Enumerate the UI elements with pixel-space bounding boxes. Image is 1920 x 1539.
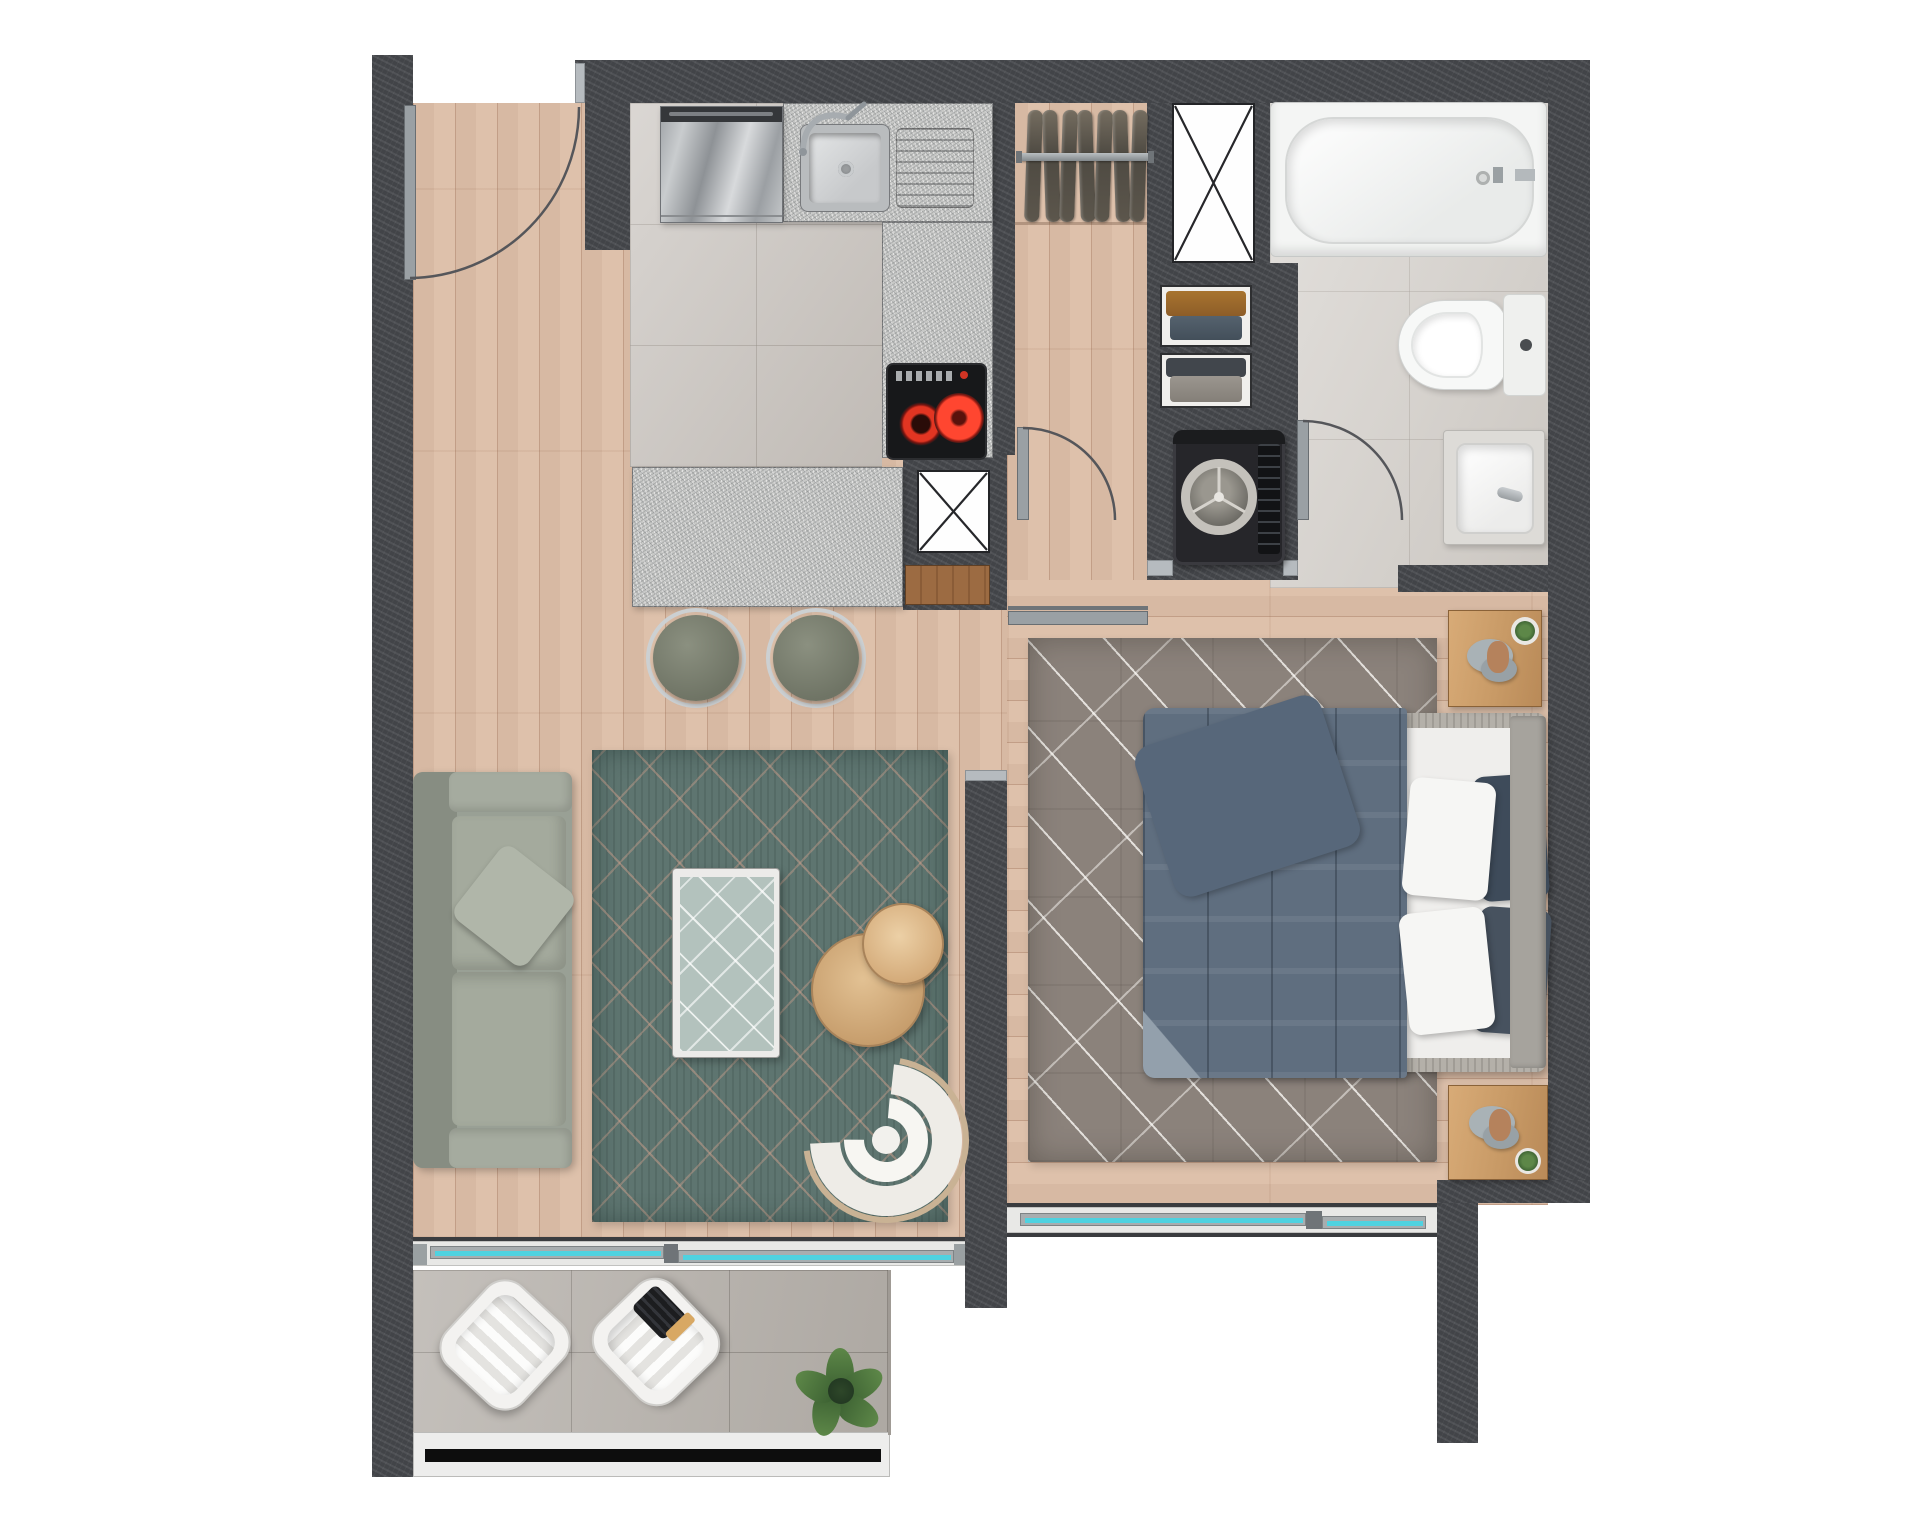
wall-closet-right xyxy=(1147,103,1172,263)
window-glass xyxy=(683,1255,951,1260)
nightstand-top xyxy=(1448,610,1542,707)
balcony-plant xyxy=(796,1348,886,1438)
washer-control-panel xyxy=(1258,444,1280,554)
washing-machine xyxy=(1173,430,1285,565)
toilet-seat xyxy=(1411,312,1483,378)
folded-clothes-blue xyxy=(1170,316,1242,340)
wall-partition-stub xyxy=(965,1240,1007,1308)
fridge-door-line xyxy=(661,215,782,217)
wall-closet-left xyxy=(990,103,1015,455)
wall-partition-living-bedroom xyxy=(965,780,1007,1240)
glazing-end-cap xyxy=(413,1244,427,1265)
balcony-edge-line xyxy=(888,1270,891,1435)
closet-rod-end xyxy=(1148,151,1154,163)
kitchen-island xyxy=(632,467,903,607)
service-shaft-kitchen xyxy=(917,470,990,553)
window-divider xyxy=(664,1244,678,1263)
sofa-backrest xyxy=(413,772,457,1168)
closet-edge-line xyxy=(1015,222,1147,225)
window-panel xyxy=(678,1250,954,1263)
sofa-armrest xyxy=(449,772,572,812)
fridge-handle xyxy=(669,112,773,116)
bathroom-door-leaf xyxy=(1297,420,1309,520)
window-glass xyxy=(1025,1218,1303,1223)
glazing-end-cap xyxy=(954,1244,965,1265)
cooktop-controls xyxy=(896,371,956,381)
shelf-compartment xyxy=(1160,285,1252,347)
plant-center xyxy=(828,1378,854,1404)
bar-stool xyxy=(773,615,859,701)
burner-large xyxy=(934,393,984,443)
window-glass xyxy=(1327,1221,1423,1226)
toilet xyxy=(1398,300,1510,390)
door-jamb-cap xyxy=(965,770,1007,781)
window-panel xyxy=(1322,1216,1426,1229)
balcony-railing xyxy=(413,1432,890,1477)
wall-right xyxy=(1548,60,1590,1203)
cooktop-indicator xyxy=(960,371,968,379)
folded-clothes-dark xyxy=(1166,358,1246,377)
door-jamb-cap xyxy=(575,63,585,103)
plant-pot xyxy=(1511,617,1539,645)
bar-stool xyxy=(653,615,739,701)
floor-plan-canvas xyxy=(0,0,1920,1539)
plant-pot xyxy=(1515,1148,1541,1174)
window-panel xyxy=(430,1246,664,1259)
wall-bathroom-bottom xyxy=(1398,565,1548,592)
service-shaft-top xyxy=(1172,103,1255,263)
sink-drain xyxy=(838,161,854,177)
washbasin xyxy=(1456,443,1534,534)
sliding-door-panel xyxy=(1008,611,1148,625)
flush-button xyxy=(1520,339,1532,351)
folded-clothes-brown xyxy=(1166,291,1246,316)
bed-pillow-white xyxy=(1401,776,1497,901)
drainboard xyxy=(896,128,974,208)
hanging-garment xyxy=(1077,110,1096,222)
hanging-garment xyxy=(1094,110,1113,222)
plant-leaves-icon xyxy=(1515,621,1535,641)
sliding-door-track xyxy=(1008,606,1148,610)
wall-bottom-right-horizontal xyxy=(1437,1180,1590,1203)
closet-rod xyxy=(1018,153,1152,161)
cooktop xyxy=(888,365,985,458)
bathtub-drain xyxy=(1476,171,1490,185)
hanging-garment xyxy=(1112,110,1131,222)
balcony-glazing xyxy=(413,1241,965,1266)
washer-top-band xyxy=(1173,430,1285,444)
window-panel xyxy=(1020,1213,1306,1226)
bathtub xyxy=(1270,102,1547,257)
plant-leaves-icon xyxy=(1518,1151,1538,1171)
bathtub-faucet xyxy=(1493,167,1503,183)
toilet-cistern xyxy=(1503,294,1546,396)
door-jamb-cap xyxy=(1283,560,1298,576)
wall-top xyxy=(575,60,1590,103)
entry-door-leaf xyxy=(404,105,416,280)
hanging-garment xyxy=(1059,110,1078,222)
shoe-cabinet xyxy=(905,565,990,605)
kitchen-sink xyxy=(800,124,890,212)
washbasin-vanity xyxy=(1443,430,1545,545)
sofa xyxy=(413,772,572,1168)
bedroom-window-inner-line xyxy=(1007,1233,1437,1237)
hanging-garment xyxy=(1129,110,1148,222)
coffee-table-glass xyxy=(680,877,774,1051)
railing-bar xyxy=(425,1449,881,1462)
wall-entry-stub xyxy=(585,103,630,250)
shelf-compartment xyxy=(1160,353,1252,408)
window-divider xyxy=(1306,1211,1322,1229)
refrigerator xyxy=(660,106,783,223)
decor-wood-slice xyxy=(1487,641,1509,673)
side-table-small xyxy=(862,903,944,985)
decor-wood-slice xyxy=(1489,1109,1511,1141)
hall-door-leaf xyxy=(1017,427,1029,520)
closet-rod-end xyxy=(1016,151,1022,163)
bathtub-faucet xyxy=(1515,169,1535,181)
washer-drum xyxy=(1181,459,1257,535)
bed-headboard xyxy=(1510,716,1546,1068)
folded-clothes-gray xyxy=(1170,376,1242,402)
window-glass xyxy=(435,1251,661,1256)
door-jamb-cap xyxy=(1147,560,1173,576)
nightstand-bottom xyxy=(1448,1085,1548,1180)
hanging-garment xyxy=(1042,110,1061,222)
bed-pillow-white xyxy=(1398,906,1496,1036)
hanging-garment xyxy=(1024,110,1043,222)
bed-duvet-fold xyxy=(1143,1010,1201,1078)
wall-bottom-right-stub xyxy=(1437,1203,1478,1443)
coffee-table xyxy=(672,868,780,1058)
bedroom-window xyxy=(1007,1207,1437,1233)
wall-shaft-top-right xyxy=(1255,103,1270,263)
sofa-armrest xyxy=(449,1128,572,1168)
closet-garments xyxy=(1026,110,1149,225)
sofa-cushion xyxy=(452,972,566,1126)
